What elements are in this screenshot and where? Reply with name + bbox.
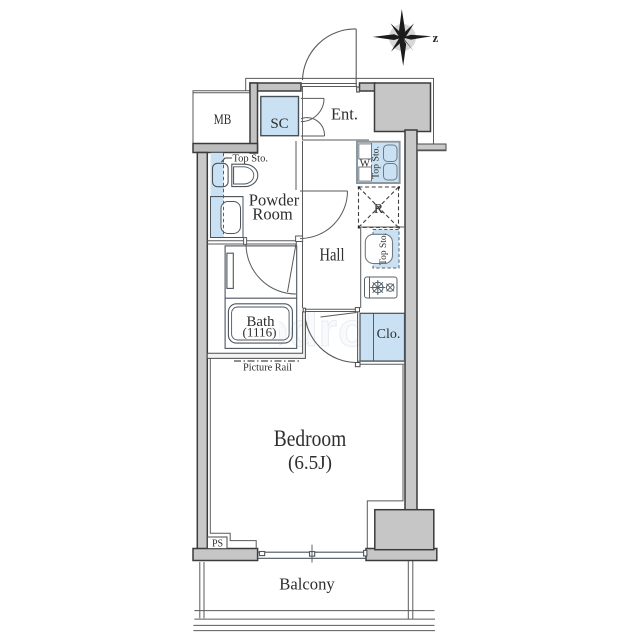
svg-text:Balcony: Balcony bbox=[279, 575, 335, 594]
svg-text:(6.5J): (6.5J) bbox=[288, 452, 332, 474]
svg-text:(1116): (1116) bbox=[243, 325, 277, 340]
svg-text:Hall: Hall bbox=[320, 245, 345, 265]
svg-text:Ent.: Ent. bbox=[331, 105, 358, 124]
svg-text:SC: SC bbox=[270, 116, 288, 132]
svg-text:z: z bbox=[433, 30, 439, 45]
svg-text:R: R bbox=[374, 202, 384, 217]
svg-text:MB: MB bbox=[214, 112, 232, 128]
svg-text:PS: PS bbox=[212, 539, 223, 550]
svg-text:Top Sto.: Top Sto. bbox=[379, 233, 389, 265]
svg-text:Top Sto.: Top Sto. bbox=[372, 146, 382, 179]
svg-text:Clo.: Clo. bbox=[377, 327, 401, 342]
svg-text:Top Sto.: Top Sto. bbox=[233, 154, 268, 165]
svg-text:Bedroom: Bedroom bbox=[274, 426, 347, 451]
svg-text:W: W bbox=[360, 158, 371, 170]
svg-text:Picture Rail: Picture Rail bbox=[243, 363, 292, 374]
svg-text:Room: Room bbox=[252, 205, 293, 224]
